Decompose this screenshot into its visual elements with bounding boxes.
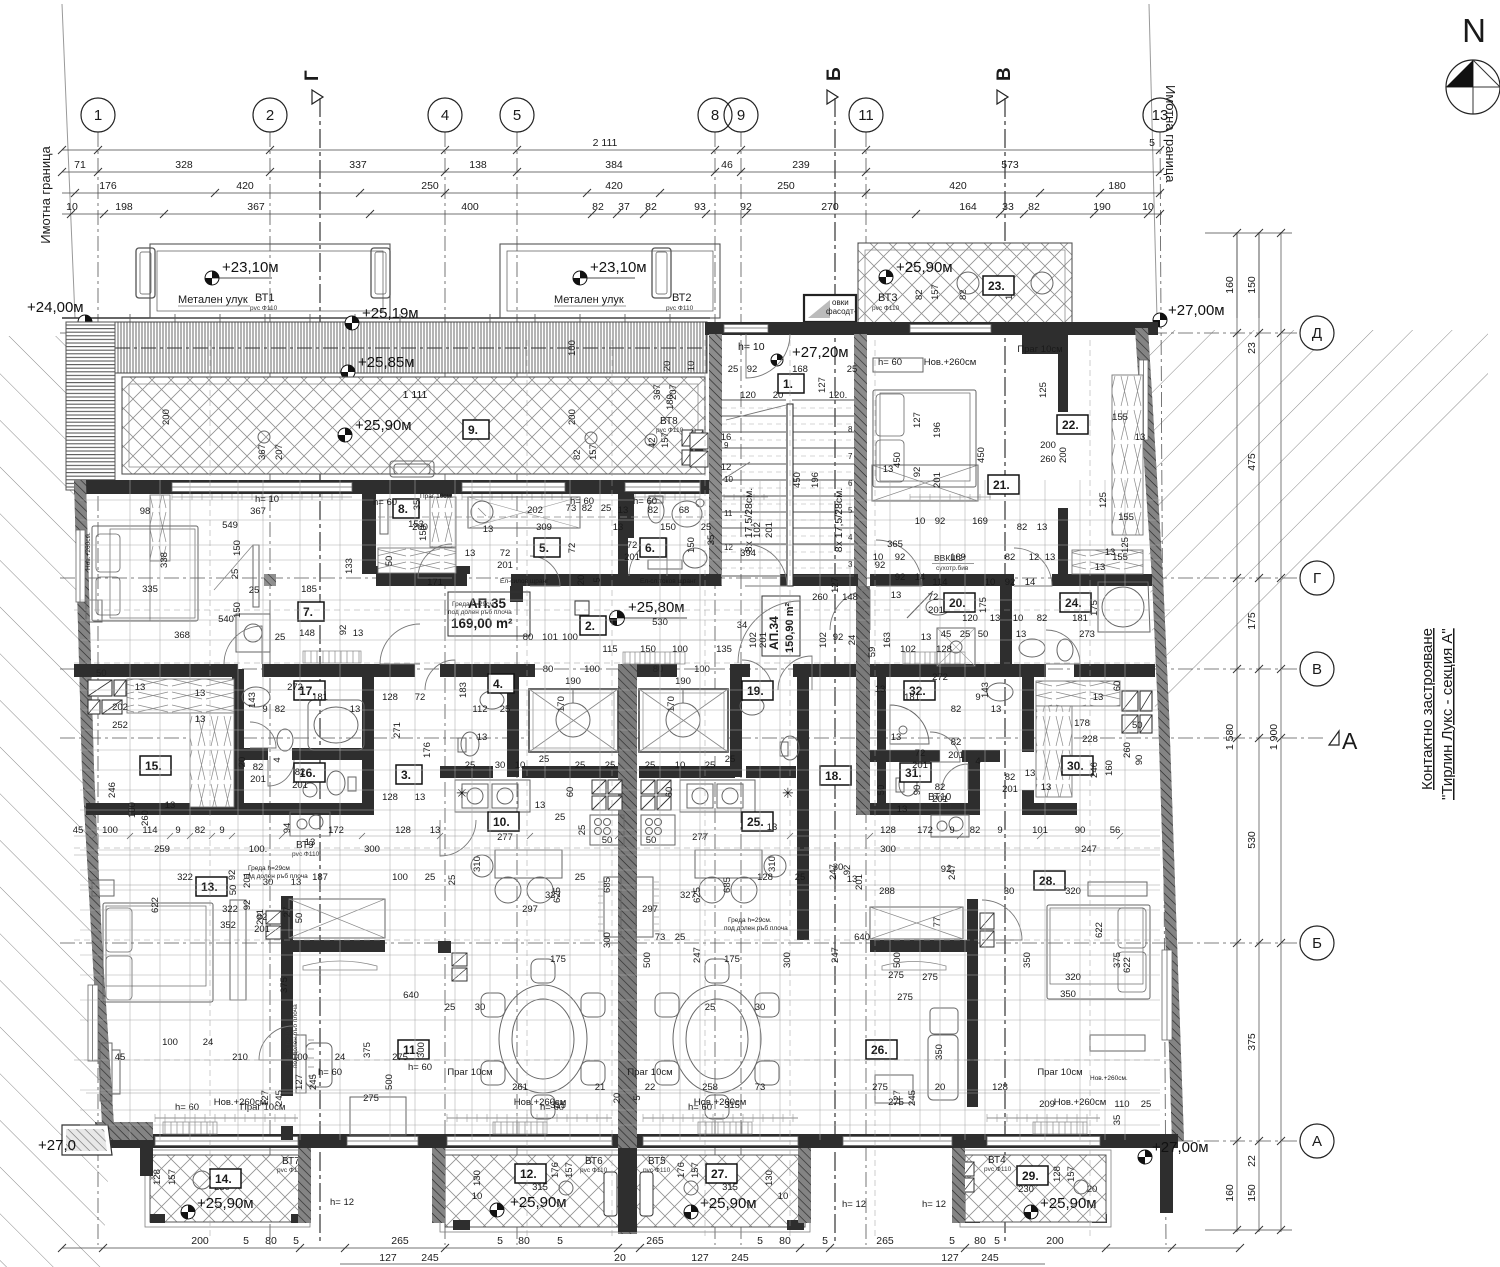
- svg-text:176: 176: [99, 180, 117, 192]
- svg-text:185: 185: [301, 584, 317, 595]
- svg-text:320: 320: [1065, 972, 1081, 983]
- svg-text:h= 60: h= 60: [175, 1102, 199, 1113]
- svg-text:АП.34: АП.34: [767, 616, 781, 650]
- svg-text:25: 25: [425, 872, 436, 883]
- svg-text:100: 100: [162, 1037, 178, 1048]
- svg-text:72: 72: [915, 748, 926, 759]
- svg-text:150: 150: [232, 540, 243, 556]
- svg-text:13: 13: [1152, 107, 1169, 124]
- svg-text:114: 114: [932, 577, 947, 588]
- svg-text:2: 2: [266, 107, 274, 124]
- svg-text:25: 25: [447, 875, 458, 886]
- svg-text:ВТ1: ВТ1: [255, 292, 274, 304]
- svg-text:350: 350: [1022, 952, 1033, 968]
- svg-text:375: 375: [1246, 1033, 1258, 1051]
- svg-text:4: 4: [441, 107, 449, 124]
- svg-text:25: 25: [728, 364, 739, 375]
- svg-text:+25,90м: +25,90м: [896, 259, 953, 276]
- svg-text:под долен ръб плоча: под долен ръб плоча: [724, 924, 788, 932]
- svg-text:127: 127: [817, 377, 828, 393]
- svg-text:13: 13: [483, 524, 494, 535]
- svg-text:172: 172: [917, 825, 933, 836]
- svg-text:100: 100: [672, 644, 688, 655]
- svg-text:9: 9: [262, 704, 267, 715]
- svg-text:272: 272: [287, 682, 303, 693]
- svg-text:338: 338: [159, 552, 170, 568]
- svg-text:112: 112: [472, 704, 487, 715]
- svg-text:Б: Б: [1312, 935, 1322, 952]
- svg-text:10: 10: [1013, 613, 1024, 624]
- svg-text:120: 120: [962, 613, 978, 624]
- svg-text:Греда h=29см: Греда h=29см: [452, 601, 494, 608]
- svg-text:Имотна граница: Имотна граница: [1163, 85, 1178, 183]
- svg-text:+25,19м: +25,19м: [362, 305, 419, 322]
- svg-text:11: 11: [858, 107, 874, 124]
- svg-text:34: 34: [737, 620, 748, 631]
- svg-text:ВТ4: ВТ4: [988, 1155, 1006, 1166]
- svg-text:30: 30: [755, 1002, 766, 1013]
- svg-text:5: 5: [949, 1235, 955, 1247]
- svg-text:22: 22: [645, 1082, 656, 1093]
- svg-text:100: 100: [102, 825, 118, 836]
- svg-text:24.: 24.: [1065, 596, 1082, 610]
- svg-text:13: 13: [767, 822, 778, 833]
- svg-text:А: А: [1342, 728, 1358, 754]
- svg-text:✳: ✳: [456, 785, 468, 801]
- svg-text:102: 102: [818, 632, 829, 648]
- svg-text:13: 13: [415, 792, 426, 803]
- svg-text:"Тирлин Лукс - секция А": "Тирлин Лукс - секция А": [1439, 628, 1456, 800]
- svg-text:207: 207: [274, 444, 285, 460]
- svg-text:125: 125: [1038, 382, 1049, 398]
- svg-text:60: 60: [664, 787, 675, 798]
- svg-text:h= 60: h= 60: [318, 1067, 342, 1078]
- svg-text:под долен ръб плоча: под долен ръб плоча: [448, 608, 512, 616]
- svg-text:640: 640: [854, 932, 870, 943]
- svg-text:322: 322: [177, 872, 193, 883]
- svg-text:5: 5: [848, 506, 853, 515]
- svg-text:45: 45: [73, 825, 84, 836]
- svg-text:14: 14: [915, 572, 926, 583]
- svg-text:92: 92: [895, 552, 906, 563]
- svg-text:4.: 4.: [493, 677, 503, 691]
- svg-text:25: 25: [465, 760, 476, 771]
- svg-text:127: 127: [691, 1252, 709, 1264]
- svg-text:30.: 30.: [1067, 759, 1084, 773]
- svg-text:150: 150: [660, 522, 676, 533]
- svg-text:50: 50: [1132, 720, 1143, 731]
- svg-text:155: 155: [1112, 412, 1128, 423]
- svg-text:26.: 26.: [871, 1043, 888, 1057]
- svg-text:25: 25: [1141, 1099, 1152, 1110]
- svg-text:✳: ✳: [782, 785, 794, 801]
- svg-text:201: 201: [292, 780, 308, 791]
- svg-text:300: 300: [416, 1042, 427, 1058]
- svg-text:25.: 25.: [747, 815, 764, 829]
- svg-text:157: 157: [564, 1162, 575, 1178]
- svg-text:82: 82: [645, 201, 657, 213]
- svg-text:275: 275: [922, 972, 938, 983]
- svg-text:13: 13: [1025, 768, 1036, 779]
- svg-text:12: 12: [721, 462, 732, 473]
- svg-text:35: 35: [412, 500, 423, 511]
- svg-text:13: 13: [195, 688, 206, 699]
- svg-text:540: 540: [218, 614, 234, 625]
- svg-text:+25,90м: +25,90м: [197, 1195, 254, 1212]
- svg-text:10: 10: [686, 361, 697, 372]
- svg-text:Имотна граница: Имотна граница: [38, 145, 53, 243]
- svg-text:В: В: [1312, 661, 1322, 678]
- svg-text:22.: 22.: [1062, 418, 1079, 432]
- svg-text:180: 180: [1108, 180, 1126, 192]
- svg-text:247: 247: [947, 864, 958, 880]
- svg-text:Б: Б: [824, 67, 845, 81]
- svg-text:13: 13: [465, 548, 476, 559]
- svg-text:4: 4: [975, 756, 980, 767]
- svg-text:h= 12: h= 12: [842, 1199, 866, 1210]
- svg-text:13: 13: [1135, 432, 1146, 443]
- svg-text:82: 82: [253, 762, 264, 773]
- svg-text:+27,0: +27,0: [38, 1137, 76, 1154]
- svg-text:25: 25: [960, 629, 971, 640]
- svg-text:ВТ2: ВТ2: [672, 292, 691, 304]
- svg-text:9: 9: [975, 692, 980, 703]
- svg-text:92: 92: [740, 201, 752, 213]
- svg-text:82: 82: [1028, 201, 1040, 213]
- svg-text:Нов.+260см: Нов.+260см: [214, 1097, 267, 1108]
- svg-text:Нов.+260см.: Нов.+260см.: [1090, 1075, 1128, 1082]
- svg-text:259: 259: [154, 844, 170, 855]
- svg-text:148: 148: [299, 628, 315, 639]
- svg-text:50: 50: [294, 913, 305, 924]
- svg-text:10: 10: [675, 760, 686, 771]
- svg-text:100.: 100.: [249, 844, 268, 855]
- svg-text:5: 5: [513, 107, 521, 124]
- svg-text:+23,10м: +23,10м: [222, 259, 279, 276]
- svg-text:13: 13: [350, 704, 361, 715]
- svg-text:Г: Г: [1313, 570, 1321, 587]
- svg-text:50: 50: [646, 835, 657, 846]
- svg-text:265: 265: [391, 1235, 409, 1247]
- svg-text:13: 13: [891, 590, 902, 601]
- svg-text:+25,90м: +25,90м: [355, 417, 412, 434]
- svg-text:N: N: [1462, 12, 1486, 49]
- svg-text:209: 209: [1039, 1099, 1055, 1110]
- svg-text:21.: 21.: [993, 478, 1010, 492]
- svg-text:Праг 10см: Праг 10см: [1017, 344, 1062, 355]
- svg-text:150: 150: [418, 525, 429, 541]
- svg-text:25: 25: [575, 760, 586, 771]
- svg-text:73: 73: [755, 1082, 766, 1093]
- svg-text:138: 138: [469, 159, 487, 171]
- svg-text:5: 5: [994, 1235, 1000, 1247]
- svg-text:201: 201: [255, 909, 266, 925]
- svg-text:245: 245: [981, 1252, 999, 1264]
- svg-text:ВТ7: ВТ7: [282, 1156, 300, 1167]
- svg-text:25: 25: [847, 364, 858, 375]
- svg-text:5: 5: [822, 1235, 828, 1247]
- svg-text:60: 60: [1112, 681, 1123, 692]
- svg-text:+27,00м: +27,00м: [1168, 302, 1225, 319]
- svg-text:Праг 10см: Праг 10см: [1037, 1067, 1082, 1078]
- svg-text:13: 13: [353, 628, 364, 639]
- svg-text:200: 200: [191, 1235, 209, 1247]
- svg-text:172: 172: [328, 825, 344, 836]
- svg-text:101: 101: [1032, 825, 1048, 836]
- svg-text:300: 300: [364, 844, 380, 855]
- svg-text:128: 128: [936, 644, 952, 655]
- svg-text:110: 110: [1114, 1099, 1129, 1110]
- svg-text:24: 24: [847, 635, 858, 646]
- svg-text:25: 25: [555, 812, 566, 823]
- svg-text:310: 310: [767, 856, 778, 872]
- svg-text:50: 50: [602, 835, 613, 846]
- svg-text:+27,00м: +27,00м: [1152, 1139, 1209, 1156]
- svg-text:92: 92: [747, 364, 758, 375]
- svg-text:В: В: [994, 67, 1015, 81]
- svg-text:130: 130: [472, 1170, 483, 1186]
- svg-text:157: 157: [930, 284, 941, 300]
- svg-text:Греда h=29см.: Греда h=29см.: [728, 917, 772, 924]
- svg-text:201: 201: [758, 632, 769, 648]
- svg-text:367: 367: [247, 201, 265, 213]
- svg-text:350: 350: [934, 1044, 945, 1060]
- svg-text:72: 72: [928, 592, 939, 603]
- svg-text:128: 128: [152, 1169, 163, 1185]
- svg-text:170: 170: [666, 696, 677, 712]
- svg-text:8: 8: [711, 107, 719, 124]
- svg-text:157: 157: [588, 444, 599, 460]
- svg-text:30: 30: [833, 862, 844, 873]
- svg-text:181: 181: [1072, 613, 1088, 624]
- svg-text:25: 25: [249, 585, 260, 596]
- svg-text:13: 13: [1037, 522, 1048, 533]
- svg-text:500: 500: [892, 952, 903, 968]
- svg-text:29.: 29.: [1022, 1169, 1039, 1183]
- svg-text:20: 20: [662, 361, 673, 372]
- svg-text:7.: 7.: [303, 605, 313, 619]
- svg-text:160: 160: [1224, 1184, 1236, 1202]
- svg-text:Праг 10см: Праг 10см: [627, 1067, 672, 1078]
- svg-text:228: 228: [1082, 734, 1098, 745]
- svg-text:82: 82: [195, 825, 206, 836]
- svg-text:260: 260: [140, 810, 151, 826]
- svg-text:13: 13: [1105, 547, 1116, 558]
- svg-text:10: 10: [515, 760, 526, 771]
- svg-text:25: 25: [539, 754, 550, 765]
- svg-text:1.: 1.: [783, 377, 793, 391]
- svg-text:127: 127: [941, 1252, 959, 1264]
- svg-text:157: 157: [660, 432, 671, 448]
- svg-text:157: 157: [167, 1169, 178, 1185]
- svg-text:160: 160: [1104, 760, 1115, 776]
- svg-text:Контактно застрояване: Контактно застрояване: [1419, 628, 1436, 790]
- svg-text:100: 100: [694, 664, 710, 675]
- svg-text:рvс Ф110: рvс Ф110: [580, 1167, 608, 1174]
- svg-text:181: 181: [904, 692, 920, 703]
- svg-text:375: 375: [279, 977, 290, 993]
- svg-text:рvс Ф110: рvс Ф110: [984, 1166, 1012, 1173]
- svg-text:25: 25: [500, 704, 511, 715]
- svg-text:68: 68: [679, 505, 690, 516]
- svg-text:82: 82: [275, 704, 286, 715]
- svg-text:190: 190: [1093, 201, 1111, 213]
- svg-text:175: 175: [1246, 612, 1258, 630]
- svg-text:82: 82: [958, 289, 969, 300]
- svg-text:320: 320: [1065, 886, 1081, 897]
- svg-text:12: 12: [1029, 552, 1040, 563]
- svg-text:273: 273: [1079, 629, 1095, 640]
- svg-text:190: 190: [565, 676, 581, 687]
- svg-text:10: 10: [472, 1191, 483, 1202]
- svg-text:60: 60: [565, 787, 576, 798]
- svg-text:335: 335: [142, 584, 158, 595]
- svg-text:143: 143: [247, 692, 258, 708]
- svg-text:9: 9: [219, 825, 224, 836]
- svg-text:20: 20: [1087, 1184, 1098, 1195]
- svg-text:94: 94: [282, 823, 293, 834]
- svg-text:250: 250: [777, 180, 795, 192]
- svg-text:13: 13: [875, 684, 886, 695]
- svg-text:5: 5: [557, 1235, 563, 1247]
- svg-text:394: 394: [740, 548, 756, 559]
- svg-text:375: 375: [362, 1042, 373, 1058]
- svg-text:196: 196: [932, 422, 943, 438]
- svg-text:246: 246: [1089, 762, 1100, 778]
- svg-text:72: 72: [415, 692, 426, 703]
- svg-text:35: 35: [706, 535, 717, 546]
- svg-text:24: 24: [335, 1052, 346, 1063]
- svg-text:170: 170: [556, 696, 567, 712]
- svg-text:245: 245: [421, 1252, 439, 1264]
- svg-text:8: 8: [848, 425, 853, 434]
- svg-text:475: 475: [1246, 453, 1258, 471]
- svg-text:30: 30: [1004, 886, 1015, 897]
- svg-text:80: 80: [653, 664, 664, 675]
- svg-text:640: 640: [403, 990, 419, 1001]
- svg-text:169,00 m²: 169,00 m²: [451, 616, 513, 631]
- svg-text:27.: 27.: [711, 1167, 728, 1181]
- svg-text:20: 20: [614, 1252, 626, 1264]
- svg-text:1 900: 1 900: [1268, 724, 1280, 750]
- svg-text:2.: 2.: [585, 619, 595, 633]
- svg-text:246: 246: [107, 782, 118, 798]
- svg-text:30: 30: [475, 1002, 486, 1013]
- svg-text:9: 9: [949, 825, 954, 836]
- svg-text:13: 13: [430, 825, 441, 836]
- svg-text:247: 247: [830, 947, 841, 963]
- svg-text:37: 37: [618, 201, 630, 213]
- svg-text:80: 80: [265, 1235, 277, 1247]
- svg-text:13: 13: [1016, 629, 1027, 640]
- svg-text:80: 80: [543, 664, 554, 675]
- svg-text:201: 201: [497, 560, 513, 571]
- svg-text:175: 175: [724, 954, 740, 965]
- svg-text:9: 9: [997, 825, 1002, 836]
- svg-text:+25,80м: +25,80м: [628, 599, 685, 616]
- svg-text:77: 77: [932, 917, 943, 928]
- svg-text:Греда h=29см: Греда h=29см: [285, 1023, 292, 1065]
- svg-text:10.: 10.: [493, 815, 510, 829]
- svg-text:Нов.+260см: Нов.+260см: [1054, 1097, 1107, 1108]
- svg-text:82: 82: [1017, 522, 1028, 533]
- svg-text:128: 128: [757, 872, 773, 883]
- svg-text:625: 625: [692, 887, 703, 903]
- svg-text:Метален улук: Метален улук: [178, 294, 248, 306]
- svg-text:90: 90: [912, 785, 923, 796]
- svg-text:5: 5: [293, 1235, 299, 1247]
- svg-text:13: 13: [1041, 782, 1052, 793]
- svg-text:13: 13: [305, 837, 316, 848]
- svg-text:178: 178: [1074, 718, 1090, 729]
- svg-text:13: 13: [990, 613, 1001, 624]
- svg-text:322: 322: [222, 904, 238, 915]
- svg-text:270: 270: [821, 201, 839, 213]
- svg-text:196: 196: [810, 472, 821, 488]
- svg-text:13: 13: [477, 732, 488, 743]
- svg-text:120.: 120.: [829, 390, 848, 401]
- svg-text:50: 50: [384, 556, 395, 567]
- svg-text:7: 7: [848, 452, 853, 461]
- svg-text:272: 272: [932, 672, 948, 683]
- svg-text:82: 82: [970, 825, 981, 836]
- svg-text:9: 9: [175, 825, 180, 836]
- svg-text:1 580: 1 580: [1224, 724, 1236, 750]
- svg-text:300: 300: [880, 844, 896, 855]
- svg-text:250: 250: [421, 180, 439, 192]
- svg-text:30: 30: [495, 760, 506, 771]
- svg-text:127: 127: [830, 577, 841, 593]
- svg-text:10: 10: [724, 475, 733, 484]
- svg-text:245: 245: [907, 1090, 918, 1106]
- svg-text:82: 82: [935, 782, 946, 793]
- svg-text:ВТ8: ВТ8: [660, 416, 678, 427]
- svg-text:13: 13: [847, 874, 858, 885]
- svg-text:h= 10: h= 10: [255, 494, 279, 505]
- svg-text:20: 20: [237, 757, 248, 768]
- svg-text:82: 82: [295, 767, 306, 778]
- svg-text:8.: 8.: [398, 502, 408, 516]
- svg-text:6: 6: [848, 479, 853, 488]
- svg-text:187: 187: [312, 872, 328, 883]
- svg-text:82: 82: [951, 704, 962, 715]
- svg-text:127: 127: [379, 1252, 397, 1264]
- svg-text:h= 60: h= 60: [570, 496, 594, 507]
- svg-text:6.: 6.: [645, 541, 655, 555]
- svg-text:261: 261: [512, 1082, 528, 1093]
- svg-text:367: 367: [652, 384, 663, 400]
- svg-text:169: 169: [950, 552, 966, 563]
- svg-text:13: 13: [1045, 552, 1056, 563]
- svg-text:622: 622: [1094, 922, 1105, 938]
- svg-text:9: 9: [737, 107, 745, 124]
- svg-text:200: 200: [1058, 447, 1069, 463]
- svg-text:176: 176: [550, 1162, 561, 1178]
- svg-text:300: 300: [782, 952, 793, 968]
- svg-text:176: 176: [676, 1162, 687, 1178]
- svg-text:90: 90: [1075, 825, 1086, 836]
- svg-text:157: 157: [690, 1162, 701, 1178]
- svg-text:19.: 19.: [747, 684, 764, 698]
- svg-text:92: 92: [227, 870, 238, 881]
- svg-text:+24,00м: +24,00м: [27, 299, 84, 316]
- svg-text:Д: Д: [1312, 325, 1322, 342]
- svg-text:5: 5: [592, 577, 603, 582]
- svg-text:12: 12: [724, 543, 733, 552]
- svg-text:20.: 20.: [949, 596, 966, 610]
- svg-text:100: 100: [567, 340, 578, 356]
- svg-text:Ел-сл.токов щранг: Ел-сл.токов щранг: [640, 578, 697, 585]
